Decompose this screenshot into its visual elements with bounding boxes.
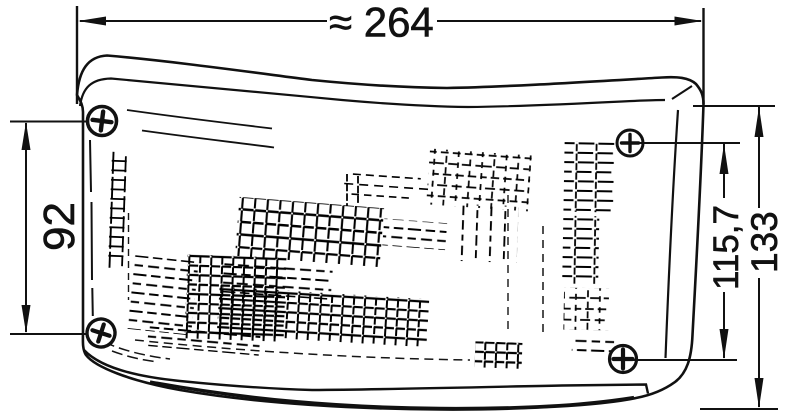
svg-text:≈ 264: ≈ 264 (329, 0, 434, 46)
svg-text:92: 92 (35, 202, 84, 251)
svg-text:115,7: 115,7 (707, 205, 746, 290)
svg-text:133: 133 (744, 211, 785, 273)
